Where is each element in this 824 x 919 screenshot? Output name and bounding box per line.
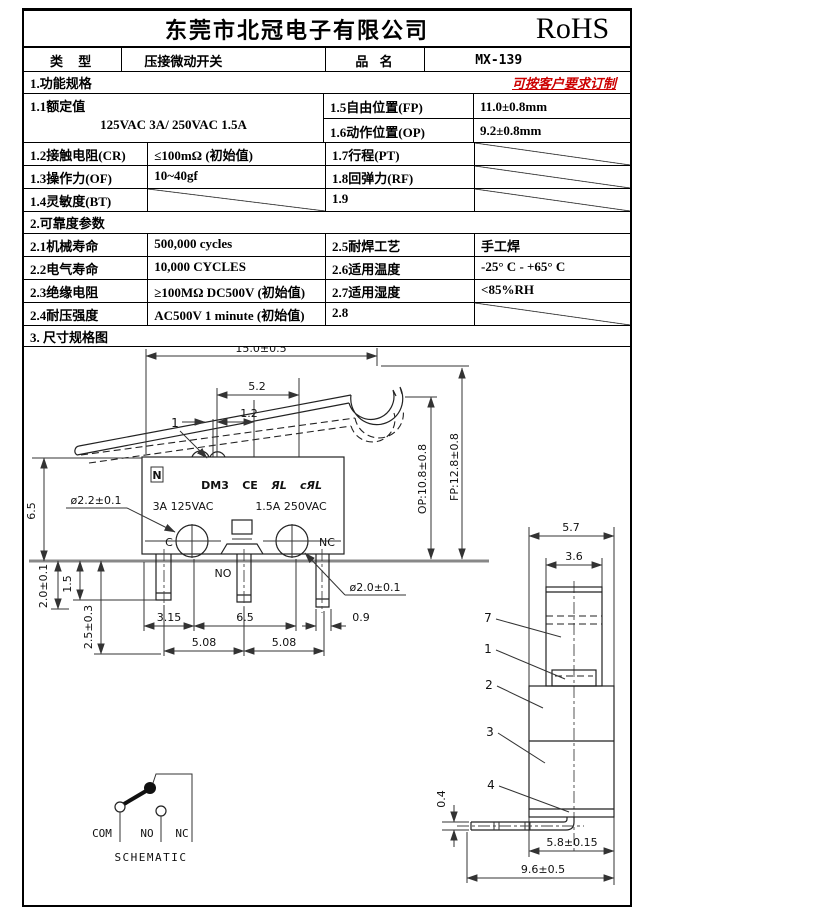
terminal-c-label: C [165, 536, 173, 549]
type-value: 压接微动开关 [122, 48, 326, 71]
schematic-nc-label: NC [175, 827, 188, 840]
main-view: N DM3 CE ЯL cЯL 3A 125VAC 1.5A 250VAC C … [25, 347, 489, 656]
cr-label: 1.2接触电阻(CR) [24, 143, 148, 165]
op-label: 1.6动作位置(OP) [324, 119, 474, 143]
rating-label: 1.1额定值 [30, 96, 85, 115]
schematic-no-label: NO [140, 827, 153, 840]
of-label: 1.3操作力(OF) [24, 166, 148, 188]
pt-label: 1.7行程(PT) [326, 143, 475, 165]
model-marking: DM3 [201, 479, 229, 492]
fp-label: 1.5自由位置(FP) [324, 94, 474, 118]
dim-6-5-pitch: 6.5 [236, 611, 254, 624]
side-callouts: 7 1 2 3 4 [484, 611, 569, 812]
dim-1-5: 1.5 [61, 575, 74, 593]
callout-1-side: 1 [484, 642, 492, 656]
dim-5-08-b: 5.08 [272, 636, 297, 649]
schematic-lever [124, 791, 146, 804]
of-value: 10~40gf [148, 166, 326, 188]
dim-op: OP:10.8±0.8 [416, 444, 429, 514]
company-name: 东莞市北冠电子有限公司 [24, 13, 515, 45]
lever-arm [75, 387, 404, 463]
bt-label: 1.4灵敏度(BT) [24, 189, 148, 211]
dimension-drawing: N DM3 CE ЯL cЯL 3A 125VAC 1.5A 250VAC C … [24, 347, 630, 905]
fp-row: 1.5自由位置(FP) 11.0±0.8mm [324, 94, 630, 119]
mech-life-value: 500,000 cycles [148, 234, 326, 256]
dim-0-4: 0.4 [435, 790, 448, 808]
callout-1-main: 1 [171, 416, 179, 430]
dim-3-6: 3.6 [565, 550, 583, 563]
spec-row-2-3: 2.3绝缘电阻 ≥100MΩ DC500V (初始值) 2.7适用湿度 <85%… [24, 280, 630, 303]
housing-markings: N DM3 CE ЯL cЯL 3A 125VAC 1.5A 250VAC C … [151, 467, 335, 580]
rating-cell: 1.1额定值 125VAC 3A/ 250VAC 1.5A [24, 94, 324, 142]
fp-value: 11.0±0.8mm [474, 94, 630, 118]
rating-marking-left: 3A 125VAC [153, 500, 214, 513]
spec-row-1-4: 1.4灵敏度(BT) 1.9 [24, 189, 630, 212]
main-left-dimensions: 6.5 2.0±0.1 1.5 2.5±0.3 [25, 458, 161, 654]
dim-hole-c: ø2.2±0.1 [71, 494, 122, 507]
schematic-contact-ball [144, 782, 156, 794]
withstand-value: AC500V 1 minute (初始值) [148, 303, 326, 325]
header-row: 东莞市北冠电子有限公司 RoHS [24, 11, 630, 48]
dim-2-5: 2.5±0.3 [82, 605, 95, 649]
withstand-label: 2.4耐压强度 [24, 303, 148, 325]
dim-5-2: 5.2 [248, 380, 266, 393]
schematic-title: SCHEMATIC [114, 851, 187, 864]
section1-title: 1.功能规格 [24, 73, 512, 92]
insulation-value: ≥100MΩ DC500V (初始值) [148, 280, 326, 302]
r28-label: 2.8 [326, 303, 475, 325]
section2-title: 2.可靠度参数 [24, 213, 630, 232]
solder-label: 2.5耐焊工艺 [326, 234, 475, 256]
elec-life-value: 10,000 CYCLES [148, 257, 326, 279]
rating-value: 125VAC 3A/ 250VAC 1.5A [24, 117, 323, 133]
dim-lever-length: 15.0±0.5 [235, 347, 286, 355]
callout-4: 4 [487, 778, 495, 792]
terminal-nc-label: NC [319, 536, 335, 549]
schematic-com-label: COM [92, 827, 112, 840]
r28-value-empty [475, 303, 630, 325]
fp-op-cells: 1.5自由位置(FP) 11.0±0.8mm 1.6动作位置(OP) 9.2±0… [324, 94, 630, 142]
dimension-drawing-area: N DM3 CE ЯL cЯL 3A 125VAC 1.5A 250VAC C … [24, 347, 630, 905]
rating-marking-right: 1.5A 250VAC [255, 500, 327, 513]
schematic-com-contact [115, 802, 125, 812]
dim-body-height: 6.5 [25, 502, 38, 520]
humidity-label: 2.7适用湿度 [326, 280, 475, 302]
elec-life-label: 2.2电气寿命 [24, 257, 148, 279]
spec-row-2-2: 2.2电气寿命 10,000 CYCLES 2.6适用温度 -25° C - +… [24, 257, 630, 280]
spec-row-1-2: 1.2接触电阻(CR) ≤100mΩ (初始值) 1.7行程(PT) [24, 143, 630, 166]
ul-mark-icon: ЯL [270, 479, 286, 492]
temp-label: 2.6适用温度 [326, 257, 475, 279]
spec-row-2-4: 2.4耐压强度 AC500V 1 minute (初始值) 2.8 [24, 303, 630, 326]
spec-row-1-1: 1.1额定值 125VAC 3A/ 250VAC 1.5A 1.5自由位置(FP… [24, 94, 630, 143]
type-label: 类 型 [24, 48, 122, 71]
cul-mark-icon: cЯL [300, 479, 322, 492]
side-view: 5.7 3.6 0. [435, 521, 614, 885]
side-dimensions: 0.4 5.8±0.15 9.6±0.5 [435, 790, 614, 883]
dim-5-7: 5.7 [562, 521, 580, 534]
op-value: 9.2±0.8mm [474, 119, 630, 143]
main-bottom-dimensions: 3.15 6.5 0.9 5.08 5.08 [144, 559, 370, 656]
terminal-pins [156, 549, 329, 613]
section3-title: 3. 尺寸规格图 [24, 327, 630, 346]
callout-7: 7 [484, 611, 492, 625]
rohs-mark: RoHS [515, 12, 630, 46]
r19-label: 1.9 [326, 189, 475, 211]
custom-order-note: 可按客户要求订制 [512, 73, 630, 92]
section2-header: 2.可靠度参数 [24, 212, 630, 234]
r19-value-empty [475, 189, 630, 211]
op-row: 1.6动作位置(OP) 9.2±0.8mm [324, 119, 630, 143]
bt-value-empty [148, 189, 326, 211]
rf-value-empty [475, 166, 630, 188]
product-value: MX-139 [425, 48, 630, 71]
dim-1-2: 1.2 [240, 407, 258, 420]
section3-header: 3. 尺寸规格图 [24, 326, 630, 347]
schematic: COM NO NC SCHEMATIC [92, 774, 192, 864]
callout-3: 3 [486, 725, 494, 739]
type-row: 类 型 压接微动开关 品 名 MX-139 [24, 48, 630, 72]
logo-glyph: N [152, 469, 161, 482]
terminal-no-label: NO [215, 567, 232, 580]
cr-value: ≤100mΩ (初始值) [148, 143, 326, 165]
spec-row-1-3: 1.3操作力(OF) 10~40gf 1.8回弹力(RF) [24, 166, 630, 189]
rf-label: 1.8回弹力(RF) [326, 166, 475, 188]
ce-mark-icon: CE [242, 479, 258, 492]
dim-2-0: 2.0±0.1 [37, 564, 50, 608]
dim-3-15: 3.15 [157, 611, 182, 624]
document-frame: 东莞市北冠电子有限公司 RoHS 类 型 压接微动开关 品 名 MX-139 1… [22, 8, 632, 907]
callout-2: 2 [485, 678, 493, 692]
dim-hole-nc: ø2.0±0.1 [350, 581, 401, 594]
terminal-holes [145, 524, 341, 558]
dim-9-6: 9.6±0.5 [521, 863, 565, 876]
dim-5-08-a: 5.08 [192, 636, 217, 649]
section1-header: 1.功能规格 可按客户要求订制 [24, 72, 630, 94]
pt-value-empty [475, 143, 630, 165]
dim-fp: FP:12.8±0.8 [448, 433, 461, 501]
temp-value: -25° C - +65° C [475, 257, 630, 279]
insulation-label: 2.3绝缘电阻 [24, 280, 148, 302]
solder-value: 手工焊 [475, 234, 630, 256]
datasheet-page: 东莞市北冠电子有限公司 RoHS 类 型 压接微动开关 品 名 MX-139 1… [0, 0, 824, 919]
side-body [529, 587, 614, 817]
dim-5-8: 5.8±0.15 [546, 836, 597, 849]
spec-row-2-1: 2.1机械寿命 500,000 cycles 2.5耐焊工艺 手工焊 [24, 234, 630, 257]
dim-0-9: 0.9 [352, 611, 370, 624]
product-label: 品 名 [326, 48, 425, 71]
humidity-value: <85%RH [475, 280, 630, 302]
mech-life-label: 2.1机械寿命 [24, 234, 148, 256]
bent-terminal [457, 817, 584, 830]
schematic-no-contact [156, 806, 166, 816]
